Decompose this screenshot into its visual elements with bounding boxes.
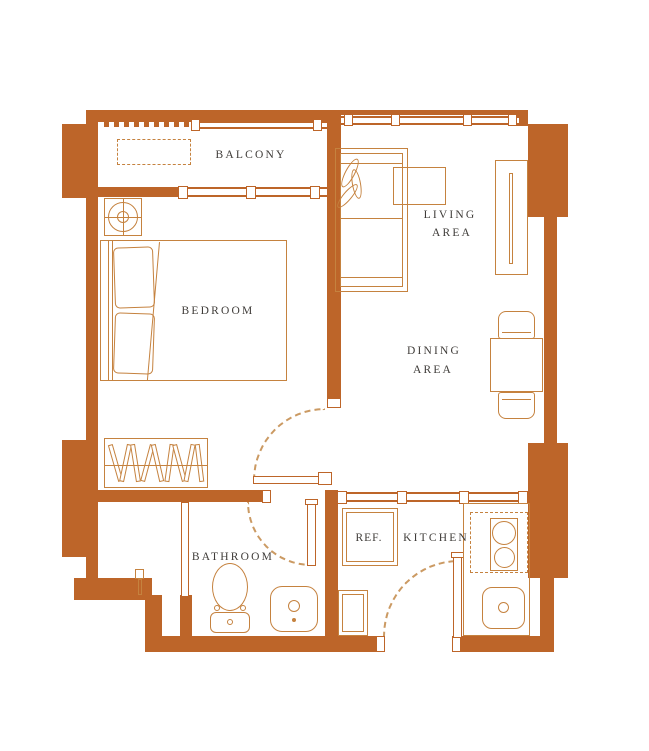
- room-label-balcony: BALCONY: [216, 149, 287, 161]
- sink-drain: [498, 602, 509, 613]
- wardrobe-rail: [105, 465, 207, 466]
- window-mullion: [337, 491, 347, 504]
- living-window: [341, 116, 519, 125]
- clothes-hanger-icon: [151, 444, 164, 482]
- pillar-top-right: [528, 124, 568, 217]
- stove-burner: [494, 547, 515, 568]
- bedroom-door-frame: [327, 398, 341, 408]
- room-label-living-line2: AREA: [432, 227, 472, 239]
- floor-plan: BALCONY LIVING AREA BEDROOM DINING AREA …: [0, 0, 649, 751]
- stove-burner: [492, 521, 516, 545]
- bathroom-door-hinge-block: [305, 499, 318, 505]
- headboard-line: [108, 241, 109, 380]
- dining-chair-top: [498, 311, 535, 339]
- room-label-living-line1: LIVING: [424, 209, 477, 221]
- bedroom-door-leaf: [253, 476, 325, 484]
- wall-right-lower: [540, 578, 554, 652]
- dining-table: [490, 338, 543, 392]
- room-label-refrigerator: REF.: [355, 532, 382, 544]
- wall-top-living: [341, 110, 519, 115]
- window-mullion: [397, 491, 407, 504]
- entry-door-leaf: [453, 556, 462, 638]
- balcony-railing-dots: [104, 122, 194, 127]
- toilet-bowl: [212, 563, 248, 611]
- kitchen-cabinet: [338, 590, 368, 636]
- wall-bathroom-top: [98, 490, 262, 502]
- wall-right-mid: [544, 217, 557, 443]
- entry-door-frame: [452, 636, 461, 652]
- room-label-bathroom: BATHROOM: [192, 551, 274, 563]
- pillar-top-left: [62, 124, 86, 198]
- bathroom-door-leaf: [307, 502, 316, 566]
- window-mullion: [178, 186, 188, 199]
- entry-door-frame: [376, 636, 385, 652]
- room-label-bedroom: BEDROOM: [182, 305, 255, 317]
- window-mullion: [508, 114, 517, 126]
- wall-bathroom-kitchen: [325, 490, 338, 652]
- window-mullion: [246, 186, 256, 199]
- water-valve-icon: [135, 569, 144, 579]
- railing-post: [313, 119, 322, 131]
- entry-door-swing-arc: [383, 560, 459, 636]
- dining-chair-bottom: [498, 392, 535, 419]
- kitchen-pass-window: [338, 492, 528, 502]
- tv-icon: [509, 173, 513, 264]
- bedroom-door-swing-arc: [253, 408, 325, 480]
- wall-bathroom-left-thin: [181, 502, 189, 597]
- clothes-hanger-icon: [195, 444, 205, 482]
- balcony-railing-glass: [193, 121, 327, 129]
- wall-bathroom-left-lower: [180, 595, 192, 652]
- coffee-table: [393, 167, 446, 205]
- pillar-bottom-right: [528, 443, 568, 578]
- clothes-hanger-icon: [183, 444, 195, 482]
- clothes-hanger-icon: [130, 444, 141, 482]
- bedroom-door-hinge-block: [318, 472, 332, 485]
- window-mullion: [463, 114, 472, 126]
- room-label-dining-line1: DINING: [407, 345, 461, 357]
- kitchen-sink: [482, 587, 525, 629]
- ceiling-unit-icon: [104, 198, 142, 236]
- water-valve-stem: [138, 579, 142, 595]
- window-mullion: [391, 114, 400, 126]
- window-mullion: [344, 114, 353, 126]
- washbasin: [270, 586, 318, 634]
- toilet: [210, 563, 250, 635]
- wall-balcony-bedroom: [98, 187, 182, 197]
- room-label-dining-line2: AREA: [413, 364, 453, 376]
- pillow: [113, 246, 155, 308]
- condenser-pad: [117, 139, 191, 165]
- railing-post: [191, 119, 200, 131]
- basin-drain: [288, 600, 300, 612]
- window-mullion: [310, 186, 320, 199]
- pillar-mid-left: [62, 440, 88, 557]
- wardrobe: [104, 438, 208, 488]
- room-label-kitchen: KITCHEN: [403, 532, 469, 544]
- tv-console: [495, 160, 528, 275]
